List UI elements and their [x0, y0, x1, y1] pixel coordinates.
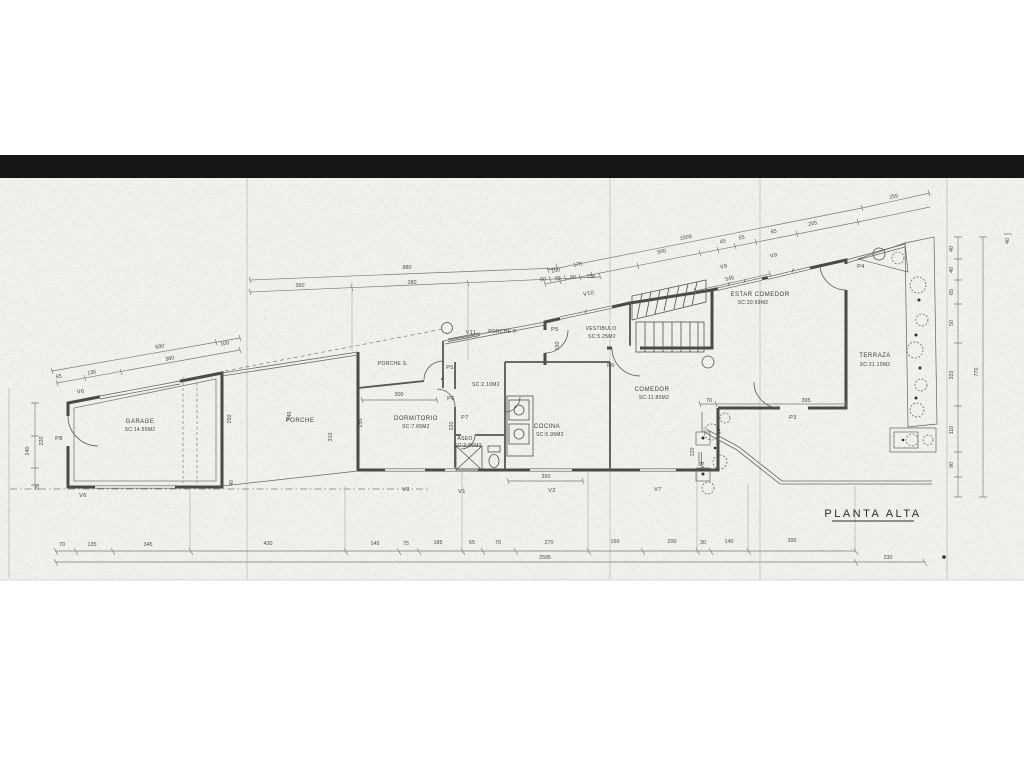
window-label-v1: V1 — [458, 489, 466, 495]
window-label-v6-bottom: V6 — [79, 493, 87, 499]
dim-misc-395: 395 — [802, 398, 811, 404]
dim-left-3: 25 — [35, 484, 41, 490]
dim-garage-6: 40 — [229, 480, 235, 486]
dim-right-1: 40 — [949, 246, 955, 252]
room-area-aseo: SC:2.85M2 — [454, 443, 482, 449]
dim-right-total: 770 — [974, 368, 980, 377]
dim-right-7: 90 — [949, 462, 955, 468]
dim-porche-2: 310 — [328, 433, 334, 442]
dim-right-5: 325 — [949, 371, 955, 380]
dim-misc-120: 120 — [690, 448, 696, 457]
room-label-terraza: TERRAZA — [859, 353, 891, 359]
dim-bottom-12: 200 — [668, 539, 677, 545]
room-label-cocina: COCINA — [534, 424, 560, 430]
dim-bottom-6: 75 — [403, 541, 409, 547]
dim-misc-300: 300 — [395, 392, 404, 398]
door-label-p6-dormitorio: P6 — [447, 396, 455, 402]
dim-topright-3: 55 — [738, 235, 745, 242]
dim-bottom-15: 395 — [788, 538, 797, 544]
dim-bottom-total: 2595 — [539, 555, 551, 561]
room-area-dormitorio: SC:7.65M2 — [402, 424, 430, 430]
dim-bottom-ext: 230 — [884, 555, 893, 561]
floor-plan-drawing: GARAGE SC:14.55M2 PORCHE DORMITORIO SC:7… — [0, 0, 1024, 768]
scanned-floor-plan-page: GARAGE SC:14.55M2 PORCHE DORMITORIO SC:7… — [0, 0, 1024, 768]
room-area-terraza: SC:21.10M2 — [860, 362, 891, 368]
dim-topmid-5: 90 — [570, 275, 576, 281]
door-label-p4: P4 — [857, 264, 865, 270]
room-label-garage: GARAGE — [126, 419, 155, 425]
room-area-distribuidor: SC:2.10M2 — [472, 382, 500, 388]
dim-garage-3: 65 — [55, 374, 62, 381]
dim-misc-70: 70 — [706, 398, 712, 404]
dim-bottom-4: 430 — [264, 541, 273, 547]
room-area-comedor: SC:11.80M2 — [639, 395, 669, 401]
window-label-v8: V8 — [700, 461, 706, 469]
dim-porche-3: 255 — [358, 419, 364, 428]
room-label-aseo: ASEO — [457, 436, 472, 442]
door-label-p5-vestibulo: P5 — [551, 327, 559, 333]
dim-right-2: 40 — [949, 267, 955, 273]
room-area-vestibulo: SC:5.25M2 — [588, 334, 616, 340]
dim-topmid-3: 60 — [540, 277, 546, 283]
window-label-v7: V7 — [654, 487, 662, 493]
scan-black-bar — [0, 155, 1024, 178]
dim-right-corner: 40 — [1005, 238, 1011, 244]
room-label-vestibulo: VESTIBULO — [586, 326, 617, 332]
room-area-estar: SC:20.59M2 — [738, 300, 769, 306]
room-area-cocina: SC:5.95M2 — [536, 432, 564, 438]
dim-bottom-2: 135 — [88, 542, 97, 548]
dim-misc-350: 350 — [542, 474, 551, 480]
dim-right-3: 65 — [949, 289, 955, 295]
room-label-comedor: COMEDOR — [635, 387, 670, 393]
door-label-p8: P8 — [55, 436, 63, 442]
dim-topmid-total: 880 — [403, 265, 412, 271]
dim-topmid-6: 155 — [587, 274, 596, 280]
door-label-p3: P3 — [789, 415, 797, 421]
door-label-p5-porche: P5 — [446, 365, 454, 371]
dim-bottom-1: 70 — [59, 542, 65, 548]
dim-bottom-7: 185 — [434, 540, 443, 546]
window-label-v3: V3 — [402, 487, 410, 493]
room-label-porche-s: PORCHE S. — [378, 361, 408, 367]
dim-garage-5: 250 — [227, 415, 233, 424]
dim-porche-1: 340 — [287, 412, 293, 421]
room-label-porche-p: PORCHE P. — [488, 329, 518, 335]
dim-right-4: 50 — [949, 320, 955, 326]
window-label-v11: V11 — [466, 330, 477, 336]
dim-topmid-1: 360 — [296, 283, 305, 289]
dim-left-2: 220 — [39, 437, 45, 446]
dim-bottom-11: 160 — [611, 539, 620, 545]
door-label-p7: P7 — [461, 415, 469, 421]
dim-bottom-3: 345 — [144, 542, 153, 548]
dim-misc-150: 150 — [555, 342, 561, 351]
dim-bottom-8: 65 — [469, 540, 475, 546]
dim-bottom-14: 140 — [725, 539, 734, 545]
dim-bottom-9: 70 — [495, 540, 501, 546]
dim-topmid-4: 65 — [555, 276, 561, 282]
room-label-dormitorio: DORMITORIO — [394, 416, 438, 422]
dim-bottom-13: 30 — [700, 540, 706, 546]
dim-topmid-2: 280 — [408, 280, 417, 286]
window-label-v2: V2 — [548, 488, 556, 494]
door-label-p6-comedor: P6 — [607, 363, 615, 369]
dim-topright-4: 65 — [770, 229, 777, 236]
dim-misc-220: 220 — [449, 422, 455, 431]
dim-bottom-10: 270 — [545, 540, 554, 546]
dim-topright-2: 45 — [719, 239, 726, 246]
plan-title: PLANTA ALTA — [824, 508, 921, 520]
room-area-garage: SC:14.55M2 — [125, 427, 156, 433]
room-label-estar: ESTAR COMEDOR — [730, 292, 789, 298]
dim-right-6: 110 — [949, 426, 955, 435]
dim-left-1: 240 — [25, 447, 31, 456]
dim-bottom-5: 145 — [371, 541, 380, 547]
